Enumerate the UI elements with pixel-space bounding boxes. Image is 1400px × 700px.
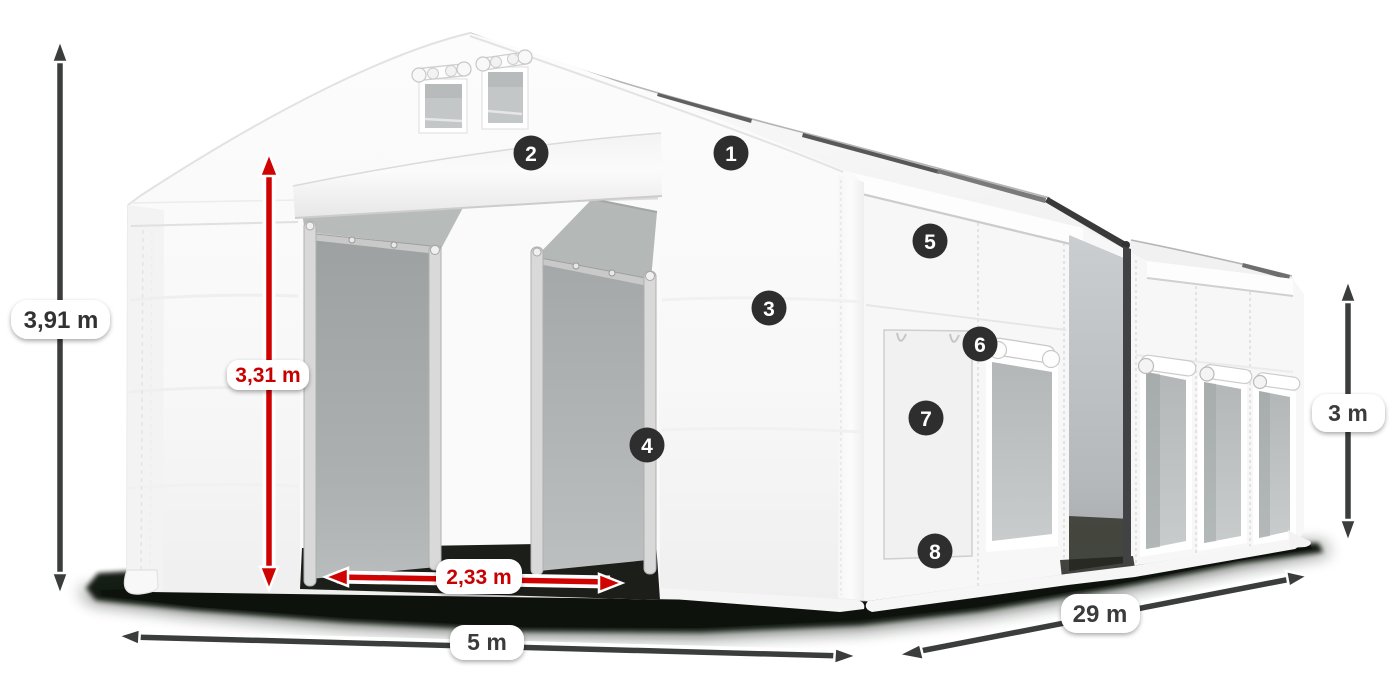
svg-text:3,91 m: 3,91 m: [24, 307, 99, 334]
svg-text:3,31 m: 3,31 m: [235, 364, 300, 387]
svg-text:8: 8: [929, 541, 941, 564]
svg-text:3 m: 3 m: [1328, 400, 1368, 426]
svg-text:7: 7: [920, 408, 932, 431]
svg-text:5: 5: [924, 231, 936, 254]
svg-text:29 m: 29 m: [1073, 601, 1128, 628]
svg-text:5 m: 5 m: [467, 629, 507, 655]
svg-text:1: 1: [725, 143, 737, 166]
svg-text:3: 3: [763, 298, 775, 321]
svg-text:2: 2: [525, 143, 537, 166]
svg-text:6: 6: [974, 334, 986, 357]
svg-text:2,33 m: 2,33 m: [446, 566, 511, 589]
svg-text:4: 4: [641, 435, 653, 458]
